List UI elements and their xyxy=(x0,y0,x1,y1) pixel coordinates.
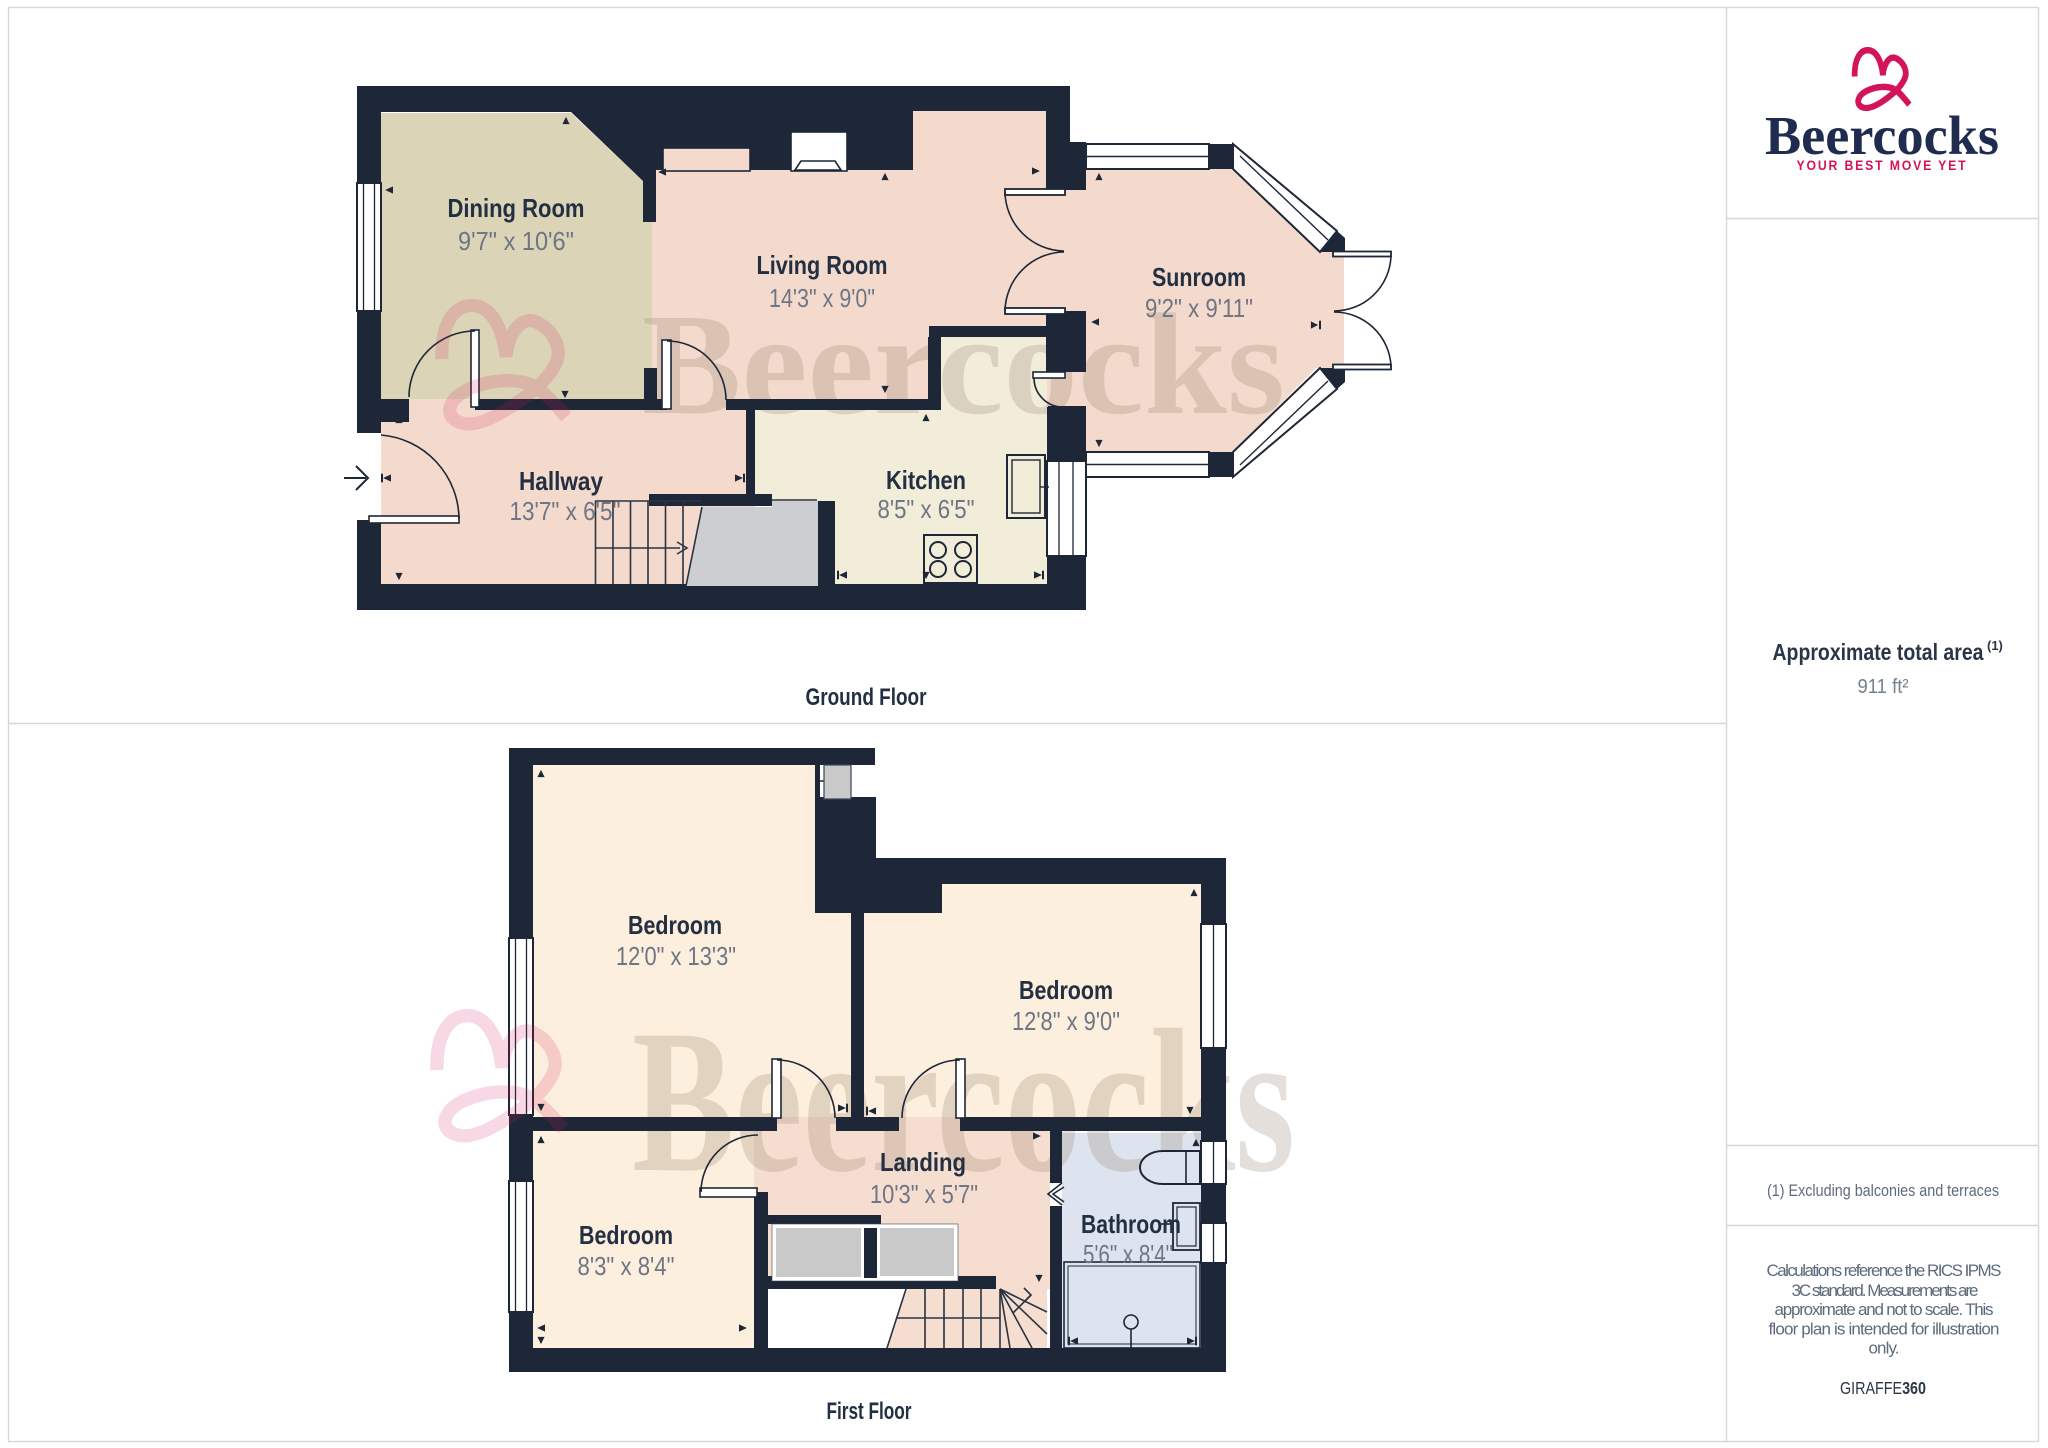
svg-text:Kitchen: Kitchen xyxy=(886,465,966,495)
svg-text:Dining Room: Dining Room xyxy=(448,193,585,223)
svg-text:Bedroom: Bedroom xyxy=(628,910,722,940)
svg-text:Ground Floor: Ground Floor xyxy=(806,684,927,711)
svg-text:Living Room: Living Room xyxy=(757,250,888,280)
svg-text:(1): (1) xyxy=(1987,638,2003,653)
svg-text:Calculations reference the RIC: Calculations reference the RICS IPMS xyxy=(1767,1261,2002,1280)
svg-text:14'3" x 9'0": 14'3" x 9'0" xyxy=(769,283,875,313)
svg-text:Bedroom: Bedroom xyxy=(1019,975,1113,1005)
svg-text:Bathroom: Bathroom xyxy=(1081,1209,1181,1239)
svg-text:Beercocks: Beercocks xyxy=(1765,105,1999,166)
svg-text:Approximate total area: Approximate total area xyxy=(1773,639,1984,665)
svg-text:911 ft²: 911 ft² xyxy=(1858,676,1909,698)
svg-text:only.: only. xyxy=(1869,1339,1900,1358)
svg-text:Landing: Landing xyxy=(880,1147,966,1177)
svg-text:12'8" x 9'0": 12'8" x 9'0" xyxy=(1012,1006,1120,1036)
svg-text:YOUR BEST MOVE YET: YOUR BEST MOVE YET xyxy=(1797,158,1968,173)
svg-text:Sunroom: Sunroom xyxy=(1152,262,1246,292)
svg-text:First Floor: First Floor xyxy=(827,1398,912,1425)
svg-text:9'7" x 10'6": 9'7" x 10'6" xyxy=(458,226,574,256)
svg-text:GIRAFFE360: GIRAFFE360 xyxy=(1840,1378,1926,1398)
svg-text:Hallway: Hallway xyxy=(519,466,603,496)
svg-text:8'5" x 6'5": 8'5" x 6'5" xyxy=(878,494,975,524)
svg-text:Bedroom: Bedroom xyxy=(579,1220,673,1250)
svg-text:12'0" x 13'3": 12'0" x 13'3" xyxy=(616,941,736,971)
svg-text:floor plan is intended for ill: floor plan is intended for illustration xyxy=(1769,1320,2000,1339)
svg-text:3C standard. Measurements are: 3C standard. Measurements are xyxy=(1792,1281,1979,1300)
svg-text:9'2" x 9'11": 9'2" x 9'11" xyxy=(1145,293,1253,323)
svg-text:5'6" x 8'4": 5'6" x 8'4" xyxy=(1083,1239,1173,1269)
svg-text:(1) Excluding balconies and te: (1) Excluding balconies and terraces xyxy=(1767,1181,1999,1200)
svg-text:13'7" x 6'5": 13'7" x 6'5" xyxy=(510,496,621,526)
svg-text:8'3" x 8'4": 8'3" x 8'4" xyxy=(578,1251,675,1281)
svg-text:10'3" x 5'7": 10'3" x 5'7" xyxy=(870,1179,978,1209)
svg-text:approximate and not to scale.: approximate and not to scale. This xyxy=(1775,1300,1994,1319)
